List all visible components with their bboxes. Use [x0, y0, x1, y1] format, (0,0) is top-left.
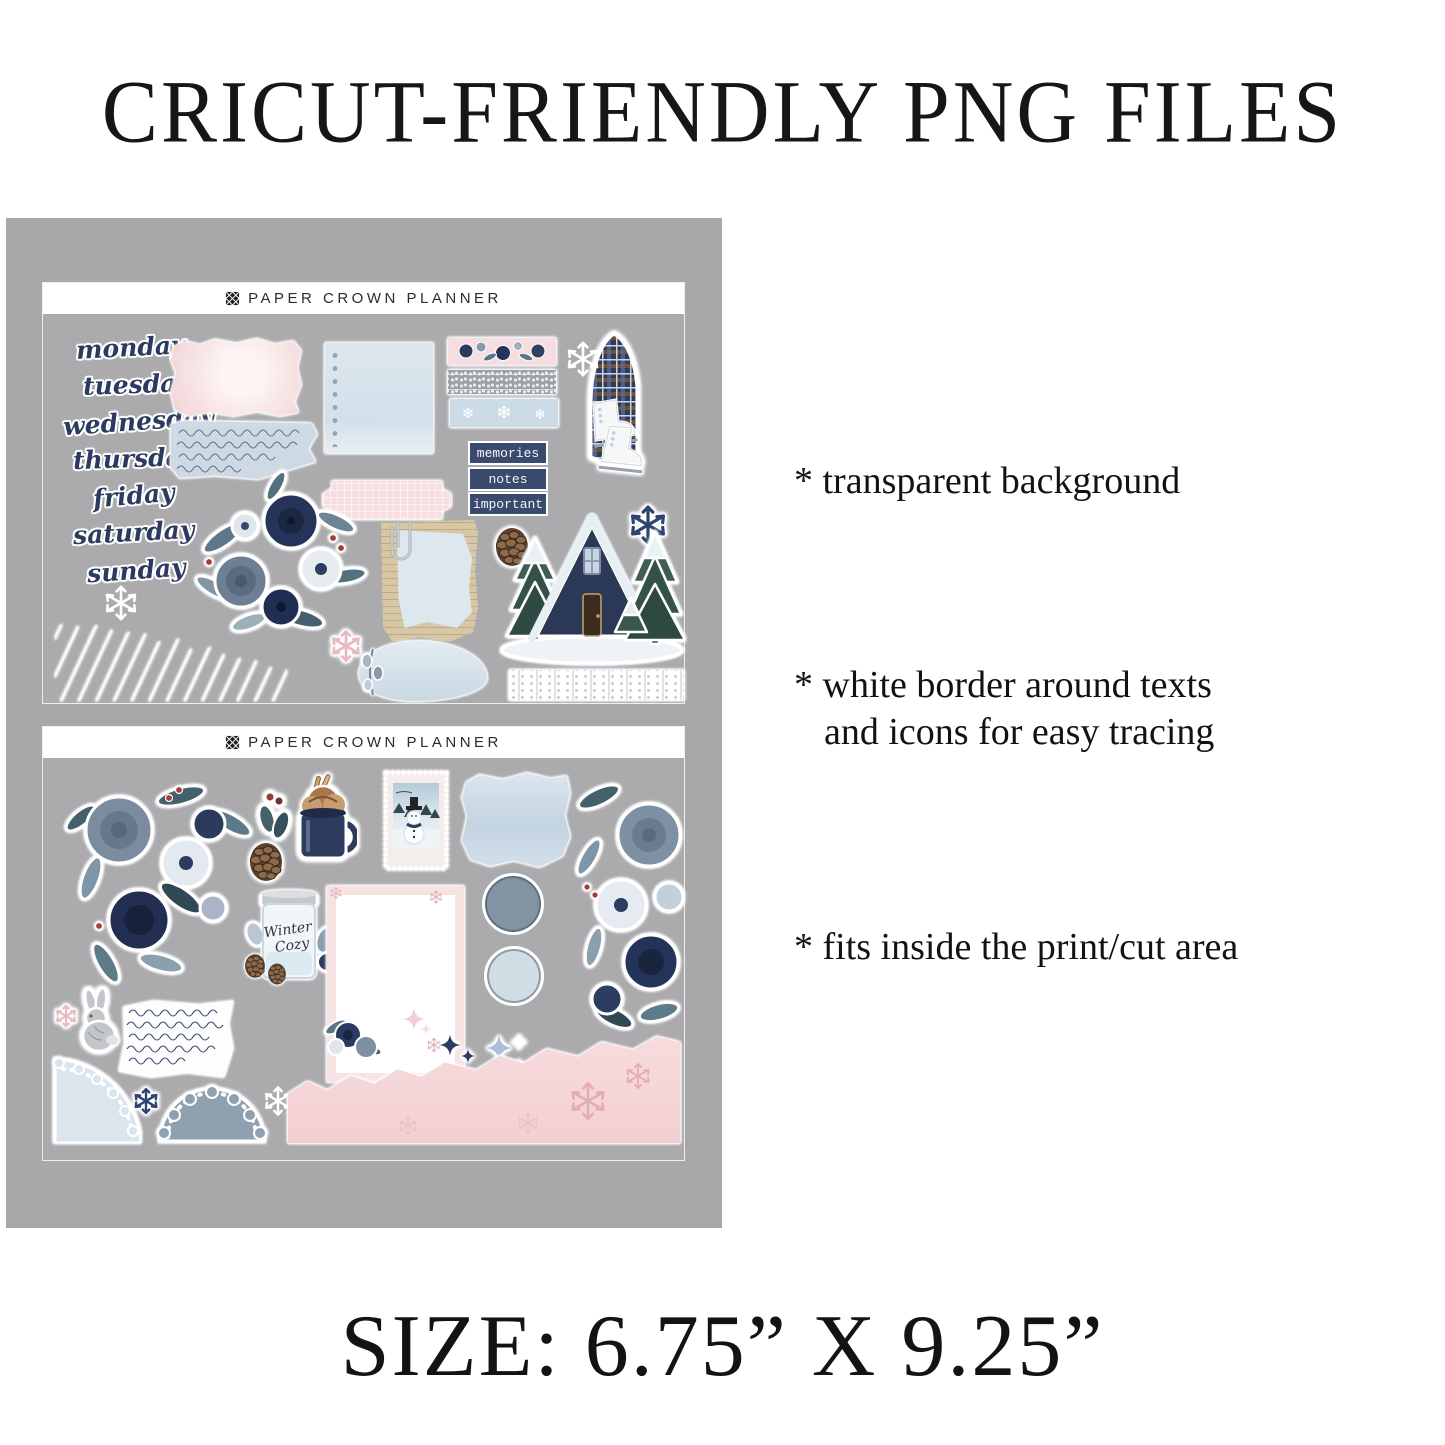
- weekday-sticker-monday: monday: [75, 332, 186, 363]
- sheet-1-header: PAPER CROWN PLANNER: [43, 283, 684, 314]
- brand-name: PAPER CROWN PLANNER: [248, 290, 502, 307]
- feature-print-cut-area: * fits inside the print/cut area: [794, 924, 1238, 971]
- sticker-sheet-1: PAPER CROWN PLANNER monday tuesday wedne…: [43, 283, 684, 703]
- sticker-sheet-2: PAPER CROWN PLANNER: [43, 727, 684, 1160]
- brushstroke-label-sticker: [359, 641, 487, 701]
- weekday-sticker-sunday: sunday: [86, 555, 186, 587]
- paperclip-icon: [389, 512, 417, 562]
- snowman-stamp-sticker: [384, 771, 448, 870]
- fair-isle-washi-sticker: [448, 370, 556, 394]
- feature-line: * white border around texts: [794, 662, 1214, 709]
- preview-panel: PAPER CROWN PLANNER monday tuesday wedne…: [6, 218, 722, 1228]
- torn-pink-paper-sticker: [288, 1031, 680, 1143]
- size-label: SIZE: 6.75” X 9.25”: [0, 1296, 1445, 1397]
- brand-name: PAPER CROWN PLANNER: [248, 734, 502, 751]
- snowflake-washi-sticker: [450, 399, 558, 427]
- light-blue-dot-sticker: [484, 946, 544, 1006]
- notebook-paper-sticker: [325, 343, 433, 453]
- holly-sprig-icon: [255, 787, 293, 845]
- half-doily-sticker: [154, 1071, 269, 1143]
- page-title: CRICUT-FRIENDLY PNG FILES: [0, 61, 1445, 164]
- torn-blue-paper-sticker: [55, 598, 287, 701]
- brand-logo-icon: [225, 735, 240, 750]
- lace-trim-sticker: [509, 670, 684, 700]
- winter-floral-edge-sticker: [569, 767, 684, 1032]
- feature-line: * transparent background: [794, 458, 1180, 505]
- brand-logo-icon: [225, 291, 240, 306]
- pink-torn-paper-sticker: [171, 338, 301, 416]
- pink-snowflake-icon: [54, 1003, 78, 1029]
- feature-transparent-background: * transparent background: [794, 458, 1180, 505]
- tag-memories: memories: [468, 441, 548, 465]
- white-snowflake-icon: [564, 338, 602, 380]
- feature-line: and icons for easy tracing: [794, 709, 1214, 756]
- weekday-sticker-saturday: saturday: [72, 517, 195, 548]
- feature-white-border: * white border around texts and icons fo…: [794, 662, 1214, 756]
- paint-swatch-sticker: [462, 773, 570, 867]
- dark-blue-dot-sticker: [482, 873, 544, 935]
- feature-line: * fits inside the print/cut area: [794, 924, 1238, 971]
- floral-washi-sticker: [448, 338, 556, 365]
- tag-notes: notes: [468, 467, 548, 491]
- sheet-2-header: PAPER CROWN PLANNER: [43, 727, 684, 758]
- corner-doily-sticker: [53, 1043, 141, 1143]
- weekday-sticker-friday: friday: [92, 479, 176, 511]
- floral-twig-icon: [355, 643, 391, 699]
- torn-note-paperclip-sticker: [381, 520, 478, 642]
- cabin-with-trees-sticker: [499, 510, 685, 665]
- pinecone-icon: [247, 842, 285, 882]
- hot-cocoa-mug-sticker: [289, 772, 357, 865]
